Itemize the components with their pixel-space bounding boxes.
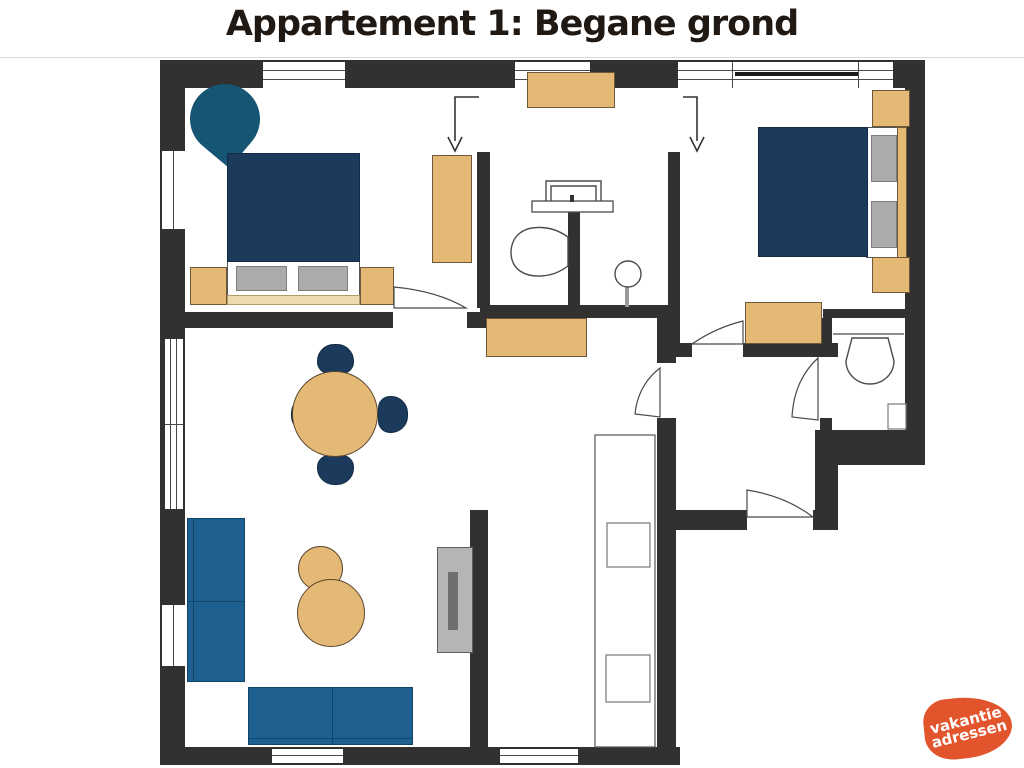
entry-arrow-bedroom2 [683,97,697,141]
floorplan-page: Appartement 1: Begane grond [0,0,1024,768]
logo-text: vakantie adressen [927,704,1009,750]
door-swing-entrance [747,490,813,517]
entry-arrow-bedroom1 [455,97,479,141]
door-swing-hall-living [635,368,660,417]
brush-holder [615,261,641,287]
sink-faucet [570,195,574,202]
kitchen-sink [607,523,650,567]
sink-counter [532,201,613,212]
kitchen-stove [606,655,650,702]
door-swing-bathroom2 [792,358,818,420]
toilet-bowl [846,338,894,384]
door-swing-bedroom1 [394,287,466,308]
wash-basin [511,227,568,276]
door-swing-bedroom2 [692,321,743,344]
bathroom2-sink [888,404,906,429]
outline-layer [0,0,1024,768]
